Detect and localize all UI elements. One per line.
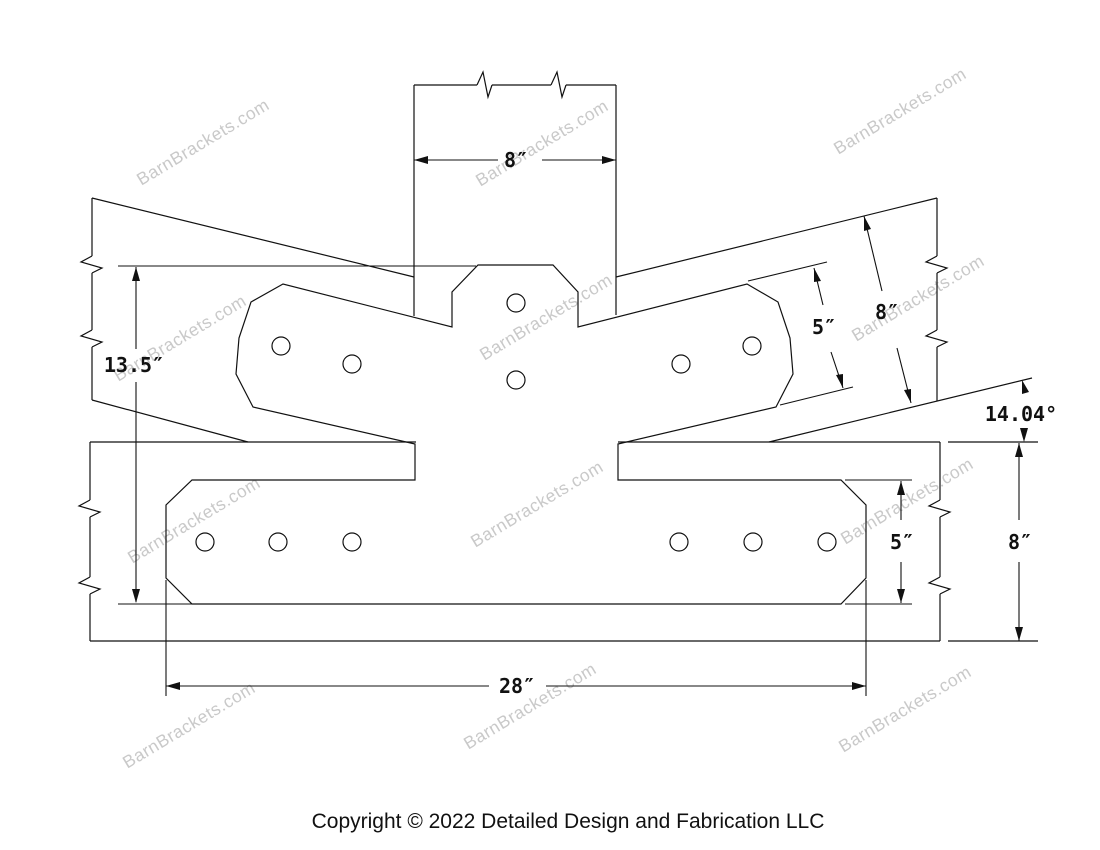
- bolt-hole: [507, 294, 525, 312]
- dim-bottom-beam-height: 8″: [1008, 443, 1032, 641]
- watermark-text: BarnBrackets.com: [119, 677, 259, 772]
- break-mark: [81, 256, 102, 273]
- dim-bottom-plate-length: 28″: [166, 580, 866, 698]
- left-rafter-outline: [81, 198, 414, 442]
- watermark-layer: BarnBrackets.com BarnBrackets.com BarnBr…: [110, 63, 988, 772]
- dim-post-width-label: 8″: [504, 148, 528, 172]
- break-mark: [79, 577, 100, 594]
- break-mark: [551, 72, 566, 97]
- bolt-hole: [272, 337, 290, 355]
- watermark-text: BarnBrackets.com: [476, 269, 616, 364]
- break-mark: [929, 577, 950, 594]
- break-mark: [477, 72, 492, 97]
- dim-rafter-beam-width-label: 8″: [875, 300, 899, 324]
- bolt-hole: [343, 355, 361, 373]
- bolt-hole: [343, 533, 361, 551]
- bolt-hole: [269, 533, 287, 551]
- break-mark: [929, 500, 950, 517]
- watermark-text: BarnBrackets.com: [835, 661, 975, 756]
- break-mark: [81, 330, 102, 347]
- drawing-page: BarnBrackets.com BarnBrackets.com BarnBr…: [0, 0, 1100, 850]
- watermark-text: BarnBrackets.com: [460, 658, 600, 753]
- watermark-text: BarnBrackets.com: [848, 250, 988, 345]
- watermark-text: BarnBrackets.com: [133, 94, 273, 189]
- dim-post-width: 8″: [414, 148, 616, 172]
- dim-pitch-angle-label: 14.04°: [985, 402, 1057, 426]
- dim-bottom-plate-length-label: 28″: [499, 674, 535, 698]
- watermark-text: BarnBrackets.com: [124, 472, 264, 567]
- break-mark: [926, 330, 947, 347]
- watermark-text: BarnBrackets.com: [467, 456, 607, 551]
- dim-bottom-beam-height-label: 8″: [1008, 530, 1032, 554]
- bolt-hole: [196, 533, 214, 551]
- bolt-hole: [670, 533, 688, 551]
- technical-drawing-svg: BarnBrackets.com BarnBrackets.com BarnBr…: [0, 0, 1100, 850]
- bolt-hole: [743, 337, 761, 355]
- bolt-hole: [818, 533, 836, 551]
- bolt-hole: [744, 533, 762, 551]
- dim-pitch-angle: 14.04°: [985, 380, 1057, 442]
- bolt-hole: [507, 371, 525, 389]
- bracket-plate-outline: [166, 265, 866, 604]
- dim-overall-height: 13.5″: [104, 266, 476, 604]
- bolt-hole: [672, 355, 690, 373]
- break-mark: [79, 500, 100, 517]
- dim-rafter-plate-width-label: 5″: [812, 315, 836, 339]
- dim-overall-height-label: 13.5″: [104, 353, 164, 377]
- watermark-text: BarnBrackets.com: [472, 95, 612, 190]
- copyright-text: Copyright © 2022 Detailed Design and Fab…: [312, 810, 825, 833]
- dim-rafter-plate-width: 5″: [748, 262, 853, 405]
- watermark-text: BarnBrackets.com: [830, 63, 970, 158]
- dim-bottom-plate-height-label: 5″: [890, 530, 914, 554]
